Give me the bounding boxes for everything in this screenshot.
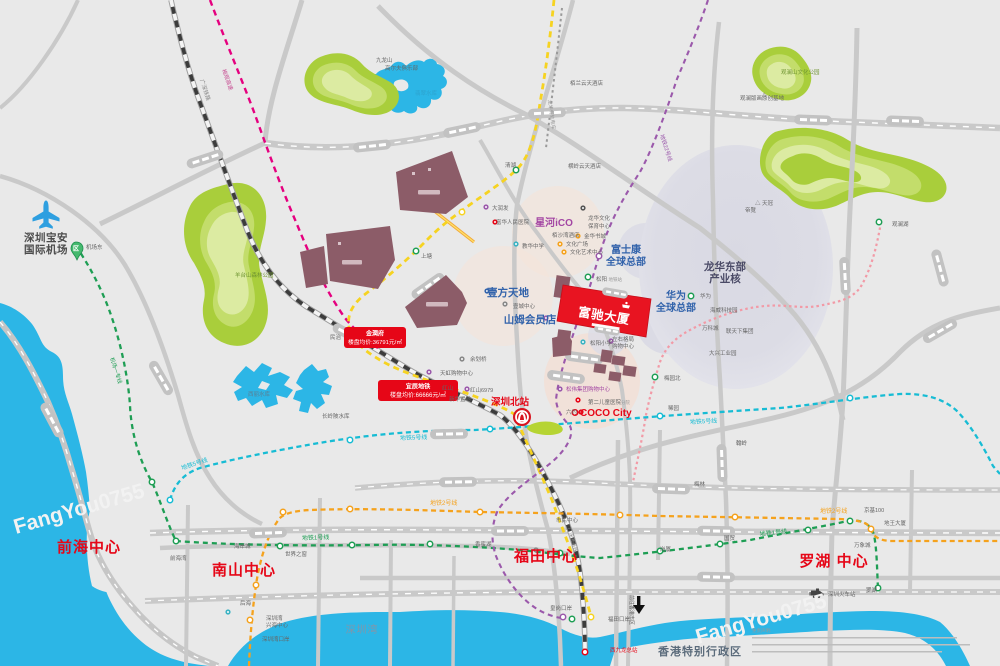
svg-text:星河iCO: 星河iCO xyxy=(535,217,573,229)
svg-text:南山中心: 南山中心 xyxy=(212,561,276,579)
svg-text:保育中心: 保育中心 xyxy=(588,222,611,230)
svg-text:羊台山森林公园: 羊台山森林公园 xyxy=(235,271,274,279)
svg-text:国际机场: 国际机场 xyxy=(24,243,68,256)
svg-text:前海湾: 前海湾 xyxy=(170,554,187,562)
svg-text:罗湖 中心: 罗湖 中心 xyxy=(799,552,868,570)
svg-text:地铁2号线: 地铁2号线 xyxy=(820,507,847,515)
svg-text:富士康: 富士康 xyxy=(611,243,642,256)
svg-text:市民中心: 市民中心 xyxy=(556,516,579,524)
svg-text:福田口岸: 福田口岸 xyxy=(608,615,631,623)
svg-text:深圳火车站: 深圳火车站 xyxy=(828,590,856,598)
svg-text:海威科技园: 海威科技园 xyxy=(710,306,738,314)
svg-text:深圳湾: 深圳湾 xyxy=(266,614,283,622)
svg-text:文化艺术中心: 文化艺术中心 xyxy=(570,248,604,256)
svg-text:栢沙湾酒店: 栢沙湾酒店 xyxy=(552,231,580,239)
svg-text:教华中学: 教华中学 xyxy=(522,242,545,250)
svg-text:京基100: 京基100 xyxy=(864,506,884,514)
svg-text:梅园北: 梅园北 xyxy=(664,374,681,382)
svg-text:地王大厦: 地王大厦 xyxy=(884,519,907,527)
svg-text:长岭陂水库: 长岭陂水库 xyxy=(322,412,350,420)
svg-text:福田中心: 福田中心 xyxy=(513,547,578,565)
svg-text:富华人民医院: 富华人民医院 xyxy=(496,218,530,226)
svg-text:梅林: 梅林 xyxy=(694,480,706,488)
svg-text:金华书城: 金华书城 xyxy=(584,232,607,240)
svg-text:区: 区 xyxy=(73,245,79,253)
svg-text:岗厦: 岗厦 xyxy=(660,546,672,553)
svg-text:深圳北站: 深圳北站 xyxy=(491,396,530,408)
svg-text:前往香港市区: 前往香港市区 xyxy=(628,595,635,625)
svg-text:观澜湖: 观澜湖 xyxy=(892,220,909,228)
svg-text:帝覽: 帝覽 xyxy=(745,206,757,214)
svg-text:全球总部: 全球总部 xyxy=(605,255,646,268)
svg-text:华为: 华为 xyxy=(700,292,711,300)
svg-text:产业核: 产业核 xyxy=(709,272,741,285)
svg-text:全球总部: 全球总部 xyxy=(655,301,696,314)
svg-text:楼盘均价:66666元/㎡: 楼盘均价:66666元/㎡ xyxy=(390,391,446,399)
svg-text:万象城: 万象城 xyxy=(854,541,871,549)
svg-text:第二儿童医院分院: 第二儿童医院分院 xyxy=(588,398,631,406)
svg-text:大兴工业园: 大兴工业园 xyxy=(709,349,737,357)
svg-text:深圳湾: 深圳湾 xyxy=(346,623,379,636)
svg-text:新华置地: 新华置地 xyxy=(449,395,472,403)
svg-text:文化广场: 文化广场 xyxy=(566,240,589,248)
svg-text:罗湖: 罗湖 xyxy=(866,586,878,594)
svg-text:六约: 六约 xyxy=(566,408,578,416)
svg-text:松阳小学: 松阳小学 xyxy=(590,339,613,347)
svg-text:购物中心: 购物中心 xyxy=(612,342,635,350)
svg-text:地铁2号线: 地铁2号线 xyxy=(430,499,457,507)
svg-text:横岭云天酒店: 横岭云天酒店 xyxy=(568,162,602,170)
svg-text:香蜜湖: 香蜜湖 xyxy=(475,540,492,548)
svg-text:红山: 红山 xyxy=(442,384,453,392)
svg-text:大润发: 大润发 xyxy=(492,204,509,212)
svg-text:龙华东部: 龙华东部 xyxy=(703,260,746,273)
svg-text:壹方天地: 壹方天地 xyxy=(487,286,529,299)
svg-text:栢兰云天酒店: 栢兰云天酒店 xyxy=(570,79,604,87)
svg-text:前海中心: 前海中心 xyxy=(57,538,121,556)
svg-text:红山6979: 红山6979 xyxy=(470,386,493,394)
svg-text:COCO City: COCO City xyxy=(580,408,632,419)
svg-text:松伟集团购物中心: 松伟集团购物中心 xyxy=(566,385,611,393)
svg-text:金潤府: 金潤府 xyxy=(365,330,384,338)
svg-text:翡翠水库: 翡翠水库 xyxy=(415,89,438,97)
svg-text:稀园: 稀园 xyxy=(668,404,680,412)
svg-text:万科城: 万科城 xyxy=(702,324,719,332)
svg-text:龙华文化: 龙华文化 xyxy=(588,214,611,222)
svg-text:海岸城: 海岸城 xyxy=(234,542,251,550)
svg-text:兴海中心: 兴海中心 xyxy=(266,621,289,629)
svg-text:皇岗口岸: 皇岗口岸 xyxy=(550,604,573,612)
svg-text:松阳 地铁站: 松阳 地铁站 xyxy=(596,275,623,283)
svg-text:西丽水库: 西丽水库 xyxy=(248,390,271,398)
svg-text:深圳宝安: 深圳宝安 xyxy=(24,231,68,244)
svg-text:机场东: 机场东 xyxy=(86,243,103,251)
svg-text:上塘: 上塘 xyxy=(421,252,433,260)
svg-text:山姆会员店: 山姆会员店 xyxy=(504,313,557,326)
svg-text:△ 天冠: △ 天冠 xyxy=(755,199,774,207)
svg-text:壹城中心: 壹城中心 xyxy=(513,302,536,310)
svg-text:华为: 华为 xyxy=(666,289,686,302)
svg-text:楼盘均价:36791元/㎡: 楼盘均价:36791元/㎡ xyxy=(348,338,402,346)
svg-text:高尔夫俱乐部: 高尔夫俱乐部 xyxy=(385,64,419,72)
svg-text:后海: 后海 xyxy=(240,599,252,607)
svg-text:翰岭: 翰岭 xyxy=(736,439,748,447)
svg-text:西九龙总站: 西九龙总站 xyxy=(610,646,638,654)
svg-text:宜辰地铁: 宜辰地铁 xyxy=(406,383,432,391)
svg-text:余划桥: 余划桥 xyxy=(470,355,487,363)
svg-text:联天下集团: 联天下集团 xyxy=(726,327,754,335)
svg-text:国贸: 国贸 xyxy=(724,534,736,542)
svg-text:观澜山文化公园: 观澜山文化公园 xyxy=(781,68,820,76)
svg-text:九龙山: 九龙山 xyxy=(376,56,393,64)
svg-text:清湖: 清湖 xyxy=(505,161,517,169)
svg-text:民治: 民治 xyxy=(330,333,342,341)
svg-text:天虹购物中心: 天虹购物中心 xyxy=(440,369,474,377)
svg-text:左右格局: 左右格局 xyxy=(612,335,634,343)
svg-text:深圳湾口岸: 深圳湾口岸 xyxy=(262,635,290,643)
svg-text:世界之窗: 世界之窗 xyxy=(285,550,308,558)
